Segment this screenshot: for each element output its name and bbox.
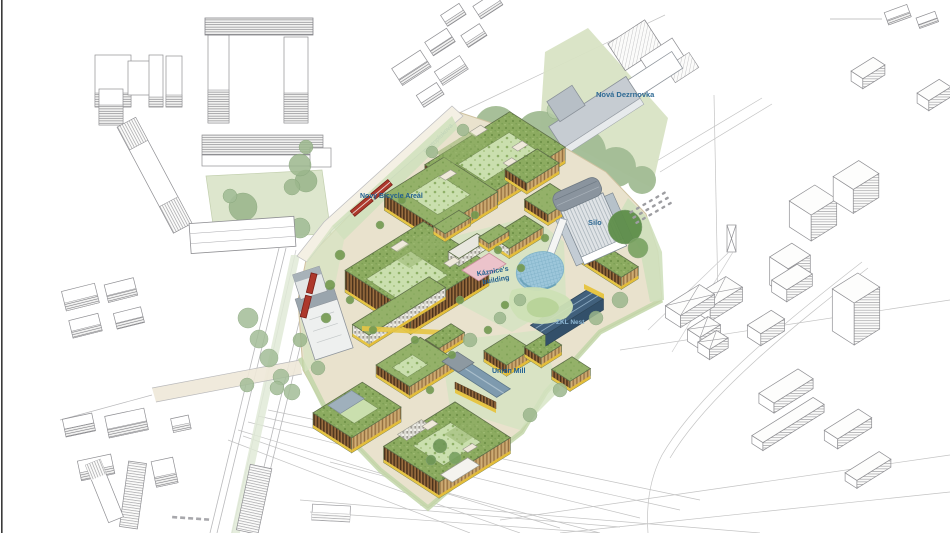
svg-text:ZKL Nest: ZKL Nest [556,319,585,326]
svg-text:Silo: Silo [588,218,602,227]
svg-text:Nová Dezrnovka: Nová Dezrnovka [596,90,655,99]
svg-text:Nový Bicycle Areál: Nový Bicycle Areál [360,193,423,200]
svg-text:Union Mill: Union Mill [492,368,525,375]
